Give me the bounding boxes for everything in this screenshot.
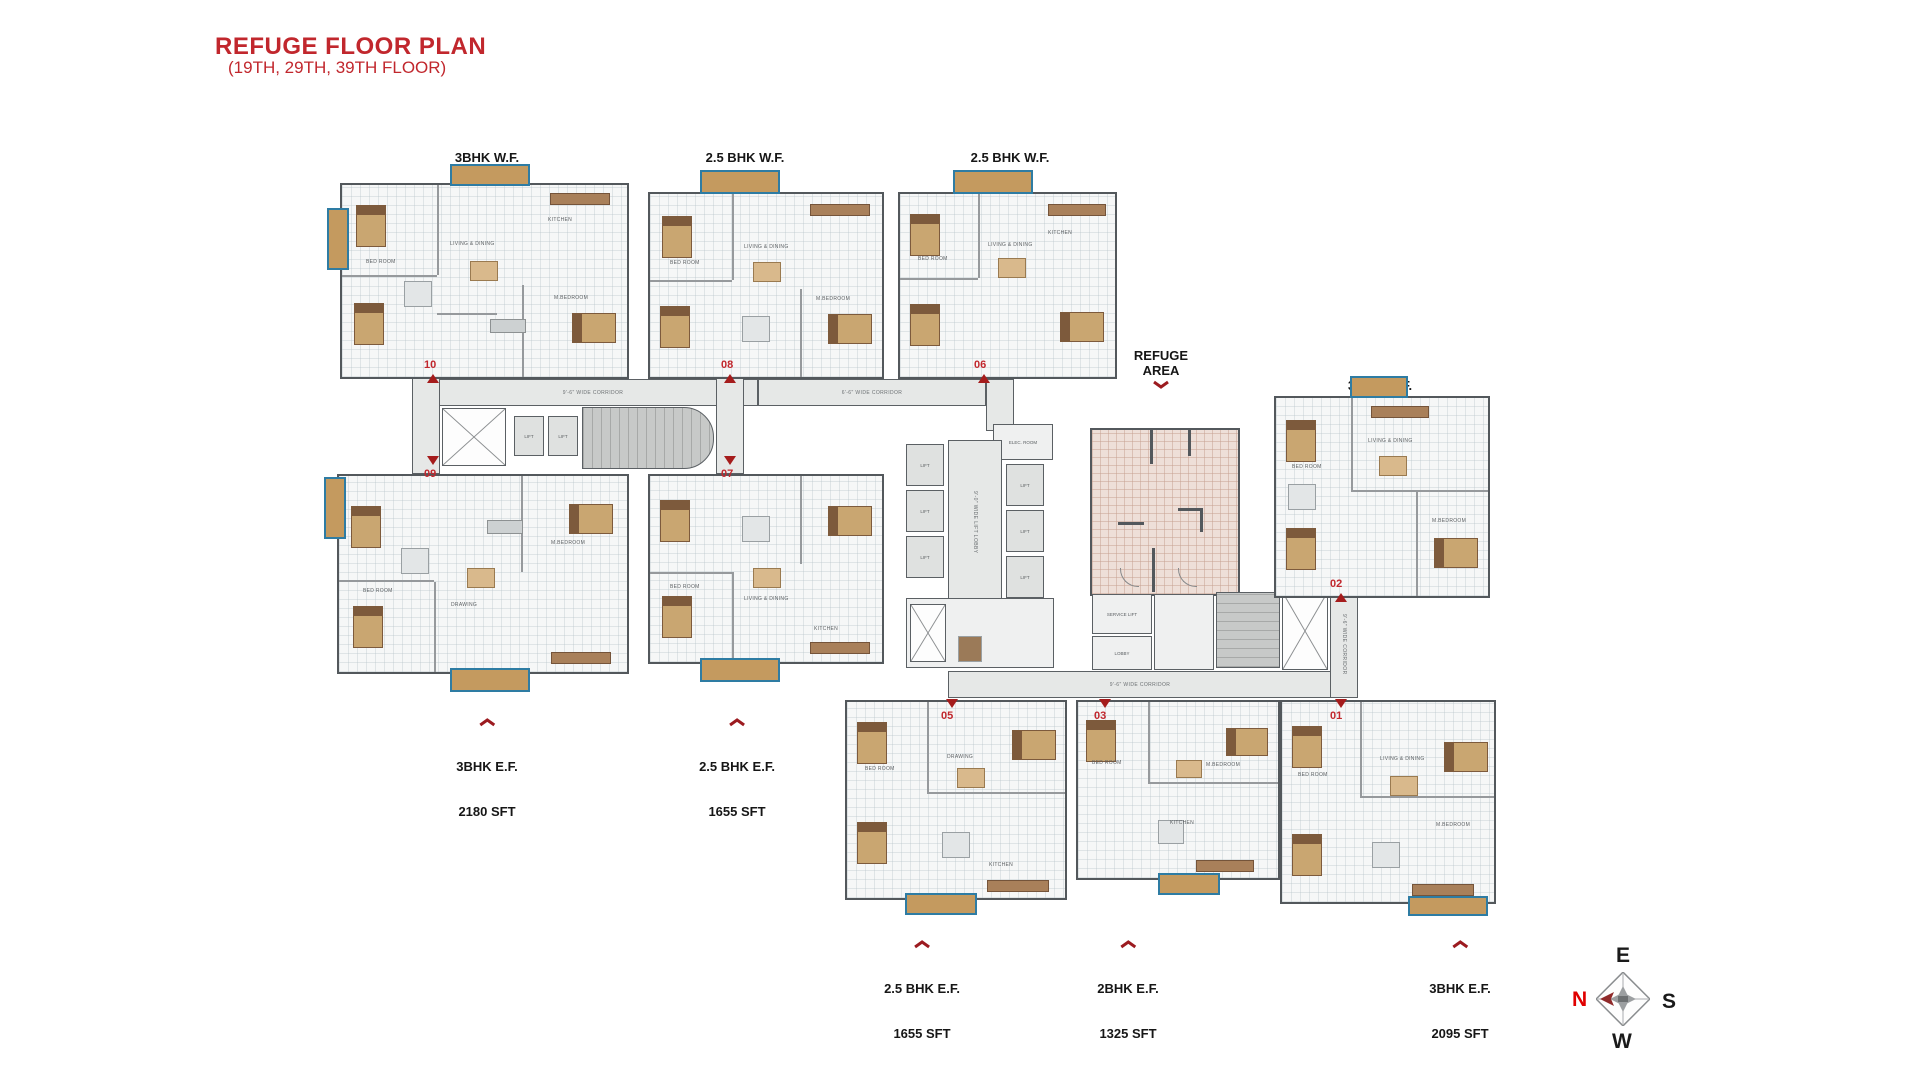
page-title: REFUGE FLOOR PLAN	[215, 33, 486, 61]
furniture-master-bed	[572, 313, 616, 343]
room-label: BED ROOM	[670, 584, 700, 590]
bathroom-cell	[742, 316, 770, 342]
lift-box: LIFT	[1006, 464, 1044, 506]
room-label: BED ROOM	[366, 259, 396, 265]
furniture-bed	[660, 306, 690, 348]
unit-label-3bhk-ef-left: 3BHK E.F. 2180 SFT	[456, 688, 517, 834]
balcony	[450, 668, 530, 692]
balcony	[1408, 896, 1488, 916]
unit-name: 3BHK W.F.	[455, 150, 519, 165]
unit-05-25bhk-ef: BED ROOM DRAWING KITCHEN	[845, 700, 1067, 900]
furniture-table	[957, 768, 985, 788]
corridor-top-left: 9'-6" WIDE CORRIDOR	[428, 379, 758, 406]
up-chevron-icon	[478, 718, 496, 727]
compass-rose: E N S W	[1560, 938, 1740, 1078]
marker-unit-08: 08	[721, 359, 733, 371]
room-label: M.BEDROOM	[551, 540, 585, 546]
furniture-bed	[1292, 726, 1322, 768]
bathroom-cell	[401, 548, 429, 574]
interior-wall	[1360, 796, 1494, 798]
furniture-master-bed	[1226, 728, 1268, 756]
room-label: BED ROOM	[1092, 760, 1122, 766]
entry-arrow-icon	[724, 374, 736, 383]
interior-wall	[1148, 782, 1278, 784]
balcony	[953, 170, 1033, 194]
furniture-master-bed	[1012, 730, 1056, 760]
unit-07-25bhk-ef: BED ROOM LIVING & DINING KITCHEN	[648, 474, 884, 664]
furniture-kitchen-counter	[550, 193, 610, 205]
wall-stub	[1118, 522, 1144, 525]
furniture-sofa	[490, 319, 526, 333]
up-chevron-icon	[1119, 940, 1137, 949]
elec-room-label: ELEC. ROOM	[1009, 440, 1037, 445]
compass-east: E	[1616, 944, 1630, 968]
room-label: LIVING & DINING	[988, 242, 1033, 248]
marker-unit-01: 01	[1330, 710, 1342, 722]
entry-arrow-icon	[1335, 593, 1347, 602]
furniture-table	[1379, 456, 1407, 476]
furniture-table	[998, 258, 1026, 278]
unit-name: 2BHK E.F.	[1097, 981, 1158, 996]
furniture-master-bed	[569, 504, 613, 534]
room-label: M.BEDROOM	[816, 296, 850, 302]
interior-wall	[1416, 490, 1418, 596]
room-label: BED ROOM	[670, 260, 700, 266]
unit-label-25bhk-ef-left: 2.5 BHK E.F. 1655 SFT	[699, 688, 775, 834]
staircase-right-core	[1216, 592, 1280, 668]
unit-area: 2095 SFT	[1429, 1026, 1490, 1041]
corridor-top-right: 6'-6" WIDE CORRIDOR	[758, 379, 986, 406]
balcony	[700, 170, 780, 194]
interior-wall	[342, 275, 437, 277]
lift-box: LIFT	[1006, 556, 1044, 598]
marker-unit-03: 03	[1094, 710, 1106, 722]
page-subtitle: (19TH, 29TH, 39TH FLOOR)	[228, 58, 446, 78]
wall-stub	[1188, 430, 1191, 456]
lift-box: LIFT	[1006, 510, 1044, 552]
bathroom-cell	[742, 516, 770, 542]
corridor-label: 6'-6" WIDE CORRIDOR	[842, 390, 903, 396]
furniture-table	[467, 568, 495, 588]
room-label: BED ROOM	[1292, 464, 1322, 470]
interior-wall	[732, 194, 734, 280]
service-store-room	[1154, 594, 1214, 670]
room-label: LIVING & DINING	[744, 244, 789, 250]
up-chevron-icon	[728, 718, 746, 727]
lift-box: LIFT	[514, 416, 544, 456]
furniture-bed	[356, 205, 386, 247]
service-lift-label: SERVICE LIFT	[1107, 612, 1137, 617]
bathroom-cell	[1288, 484, 1316, 510]
marker-unit-05: 05	[941, 710, 953, 722]
unit-area: 1655 SFT	[884, 1026, 960, 1041]
furniture-bed	[1286, 528, 1316, 570]
balcony	[1350, 376, 1408, 398]
lift-label: LIFT	[1020, 483, 1029, 488]
lift-lobby: 9'-0" WIDE LIFT LOBBY	[948, 440, 1002, 605]
interior-wall	[978, 194, 980, 278]
interior-wall	[1360, 702, 1362, 796]
room-label: DRAWING	[451, 602, 477, 608]
corridor-label: 9'-6" WIDE CORRIDOR	[1110, 682, 1171, 688]
room-label: KITCHEN	[548, 217, 572, 223]
balcony	[327, 208, 349, 270]
interior-wall	[927, 702, 929, 792]
door-arc	[1178, 568, 1197, 587]
furniture-bed	[1286, 420, 1316, 462]
unit-name: 2.5 BHK W.F.	[971, 150, 1050, 165]
lift-box: LIFT	[548, 416, 578, 456]
furniture-kitchen-counter	[1412, 884, 1474, 896]
refuge-area-label: REFUGE AREA	[1121, 348, 1201, 389]
unit-03-2bhk-ef: BED ROOM KITCHEN M.BEDROOM	[1076, 700, 1280, 880]
furniture-kitchen-counter	[1196, 860, 1254, 872]
interior-wall	[437, 313, 497, 315]
service-lift-room: SERVICE LIFT	[1092, 594, 1152, 634]
unit-label-3bhk-ef-bottom: 3BHK E.F. 2095 SFT	[1429, 910, 1490, 1056]
lift-label: LIFT	[1020, 529, 1029, 534]
room-label: M.BEDROOM	[1206, 762, 1240, 768]
room-label: BED ROOM	[363, 588, 393, 594]
furniture-kitchen-counter	[810, 642, 870, 654]
lift-label: LIFT	[920, 509, 929, 514]
corridor-label: 9'-6" WIDE CORRIDOR	[1341, 614, 1347, 675]
room-label: BED ROOM	[918, 256, 948, 262]
room-label: LIVING & DINING	[1380, 756, 1425, 762]
room-label: KITCHEN	[1048, 230, 1072, 236]
unit-name: 2.5 BHK E.F.	[884, 981, 960, 996]
unit-06-25bhk-wf: BED ROOM LIVING & DINING KITCHEN	[898, 192, 1117, 379]
door-arc	[1120, 568, 1139, 587]
wall-stub	[1152, 548, 1155, 592]
unit-area: 2180 SFT	[456, 804, 517, 819]
refuge-area-room	[1090, 428, 1240, 596]
up-chevron-icon	[913, 940, 931, 949]
furniture-bed	[910, 214, 940, 256]
room-label: M.BEDROOM	[1432, 518, 1466, 524]
open-shaft-x	[442, 408, 506, 466]
interior-wall	[650, 572, 732, 574]
interior-wall	[800, 289, 802, 377]
furniture-table	[1176, 760, 1202, 778]
bathroom-cell	[1372, 842, 1400, 868]
interior-wall	[800, 476, 802, 564]
unit-10-3bhk-wf: BED ROOM LIVING & DINING KITCHEN M.BEDRO…	[340, 183, 629, 379]
unit-area: 1655 SFT	[699, 804, 775, 819]
room-label: LIVING & DINING	[744, 596, 789, 602]
lobby-label: LOBBY	[1114, 651, 1129, 656]
service-shaft-x	[910, 604, 946, 662]
furniture-sofa	[487, 520, 523, 534]
furniture-bed	[354, 303, 384, 345]
unit-name: 3BHK E.F.	[1429, 981, 1490, 996]
up-chevron-icon	[1451, 940, 1469, 949]
balcony	[1158, 873, 1220, 895]
lift-label: LIFT	[558, 434, 567, 439]
wall-stub	[1200, 508, 1203, 532]
unit-label-2bhk-ef-bottom: 2BHK E.F. 1325 SFT	[1097, 910, 1158, 1056]
corridor-bottom: 9'-6" WIDE CORRIDOR	[948, 671, 1332, 698]
lift-label: LIFT	[920, 463, 929, 468]
furniture-kitchen-counter	[1371, 406, 1429, 418]
balcony	[324, 477, 346, 539]
room-label: KITCHEN	[814, 626, 838, 632]
interior-wall	[1351, 398, 1353, 490]
unit-label-25bhk-ef-bottom: 2.5 BHK E.F. 1655 SFT	[884, 910, 960, 1056]
down-chevron-icon	[1152, 380, 1170, 389]
furniture-master-bed	[1060, 312, 1104, 342]
furniture-bed	[353, 606, 383, 648]
unit-name: 2.5 BHK E.F.	[699, 759, 775, 774]
interior-wall	[1351, 490, 1488, 492]
furniture-table	[753, 262, 781, 282]
lift-label: LIFT	[920, 555, 929, 560]
room-label: LIVING & DINING	[450, 241, 495, 247]
unit-02-3bhk-wf: BED ROOM LIVING & DINING M.BEDROOM	[1274, 396, 1490, 598]
furniture-kitchen-counter	[551, 652, 611, 664]
open-shaft-x-right	[1282, 592, 1328, 670]
furniture-bed	[1086, 720, 1116, 762]
balcony	[905, 893, 977, 915]
toilet-cell	[958, 636, 982, 662]
interior-wall	[339, 580, 434, 582]
unit-name: 3BHK E.F.	[456, 759, 517, 774]
furniture-bed	[910, 304, 940, 346]
room-label: M.BEDROOM	[1436, 822, 1470, 828]
room-label: KITCHEN	[989, 862, 1013, 868]
unit-area: 1325 SFT	[1097, 1026, 1158, 1041]
bathroom-cell	[942, 832, 970, 858]
interior-wall	[900, 278, 978, 280]
furniture-table	[470, 261, 498, 281]
lobby-room: LOBBY	[1092, 636, 1152, 670]
entry-arrow-icon	[427, 456, 439, 465]
furniture-bed	[660, 500, 690, 542]
unit-name: 2.5 BHK W.F.	[706, 150, 785, 165]
furniture-kitchen-counter	[1048, 204, 1106, 216]
interior-wall	[1148, 702, 1150, 782]
compass-north: N	[1572, 988, 1587, 1012]
marker-unit-10: 10	[424, 359, 436, 371]
room-label: LIVING & DINING	[1368, 438, 1413, 444]
interior-wall	[434, 582, 436, 672]
refuge-floor-plan-page: { "title": { "main": "REFUGE FLOOR PLAN"…	[0, 0, 1920, 1080]
elec-room: ELEC. ROOM	[993, 424, 1053, 460]
furniture-master-bed	[828, 506, 872, 536]
entry-arrow-icon	[1099, 699, 1111, 708]
lift-box: LIFT	[906, 536, 944, 578]
entry-arrow-icon	[427, 374, 439, 383]
compass-diamond-icon	[1596, 972, 1650, 1026]
room-label: M.BEDROOM	[554, 295, 588, 301]
furniture-master-bed	[1434, 538, 1478, 568]
wall-stub	[1150, 430, 1153, 464]
furniture-master-bed	[828, 314, 872, 344]
furniture-bed	[857, 822, 887, 864]
interior-wall	[927, 792, 1065, 794]
furniture-table	[753, 568, 781, 588]
entry-arrow-icon	[724, 456, 736, 465]
furniture-bed	[1292, 834, 1322, 876]
unit-01-3bhk-ef: BED ROOM LIVING & DINING M.BEDROOM	[1280, 700, 1496, 904]
balcony	[700, 658, 780, 682]
lift-lobby-label: 9'-0" WIDE LIFT LOBBY	[972, 491, 978, 553]
furniture-bed	[351, 506, 381, 548]
interior-wall	[732, 572, 734, 662]
furniture-kitchen-counter	[987, 880, 1049, 892]
marker-unit-09: 09	[424, 468, 436, 480]
lift-label: LIFT	[524, 434, 533, 439]
entry-arrow-icon	[978, 374, 990, 383]
room-label: KITCHEN	[1170, 820, 1194, 826]
furniture-bed	[857, 722, 887, 764]
unit-09-3bhk-ef: BED ROOM DRAWING M.BEDROOM	[337, 474, 629, 674]
entry-arrow-icon	[946, 699, 958, 708]
lift-box: LIFT	[906, 490, 944, 532]
marker-unit-06: 06	[974, 359, 986, 371]
unit-name: REFUGE AREA	[1121, 348, 1201, 378]
room-label: BED ROOM	[1298, 772, 1328, 778]
wall-stub	[1178, 508, 1202, 511]
furniture-bed	[662, 216, 692, 258]
furniture-master-bed	[1444, 742, 1488, 772]
compass-west: W	[1612, 1030, 1632, 1054]
staircase-left-core	[582, 407, 714, 469]
marker-unit-02: 02	[1330, 578, 1342, 590]
interior-wall	[437, 185, 439, 275]
balcony	[450, 164, 530, 186]
compass-south: S	[1662, 990, 1676, 1014]
furniture-bed	[662, 596, 692, 638]
furniture-kitchen-counter	[810, 204, 870, 216]
corridor-vertical-right: 9'-6" WIDE CORRIDOR	[1330, 590, 1358, 698]
entry-arrow-icon	[1335, 699, 1347, 708]
marker-unit-07: 07	[721, 468, 733, 480]
lift-box: LIFT	[906, 444, 944, 486]
bathroom-cell	[404, 281, 432, 307]
interior-wall	[650, 280, 732, 282]
unit-08-25bhk-wf: BED ROOM LIVING & DINING M.BEDROOM	[648, 192, 884, 379]
room-label: BED ROOM	[865, 766, 895, 772]
lift-label: LIFT	[1020, 575, 1029, 580]
room-label: DRAWING	[947, 754, 973, 760]
furniture-table	[1390, 776, 1418, 796]
corridor-label: 9'-6" WIDE CORRIDOR	[563, 390, 624, 396]
